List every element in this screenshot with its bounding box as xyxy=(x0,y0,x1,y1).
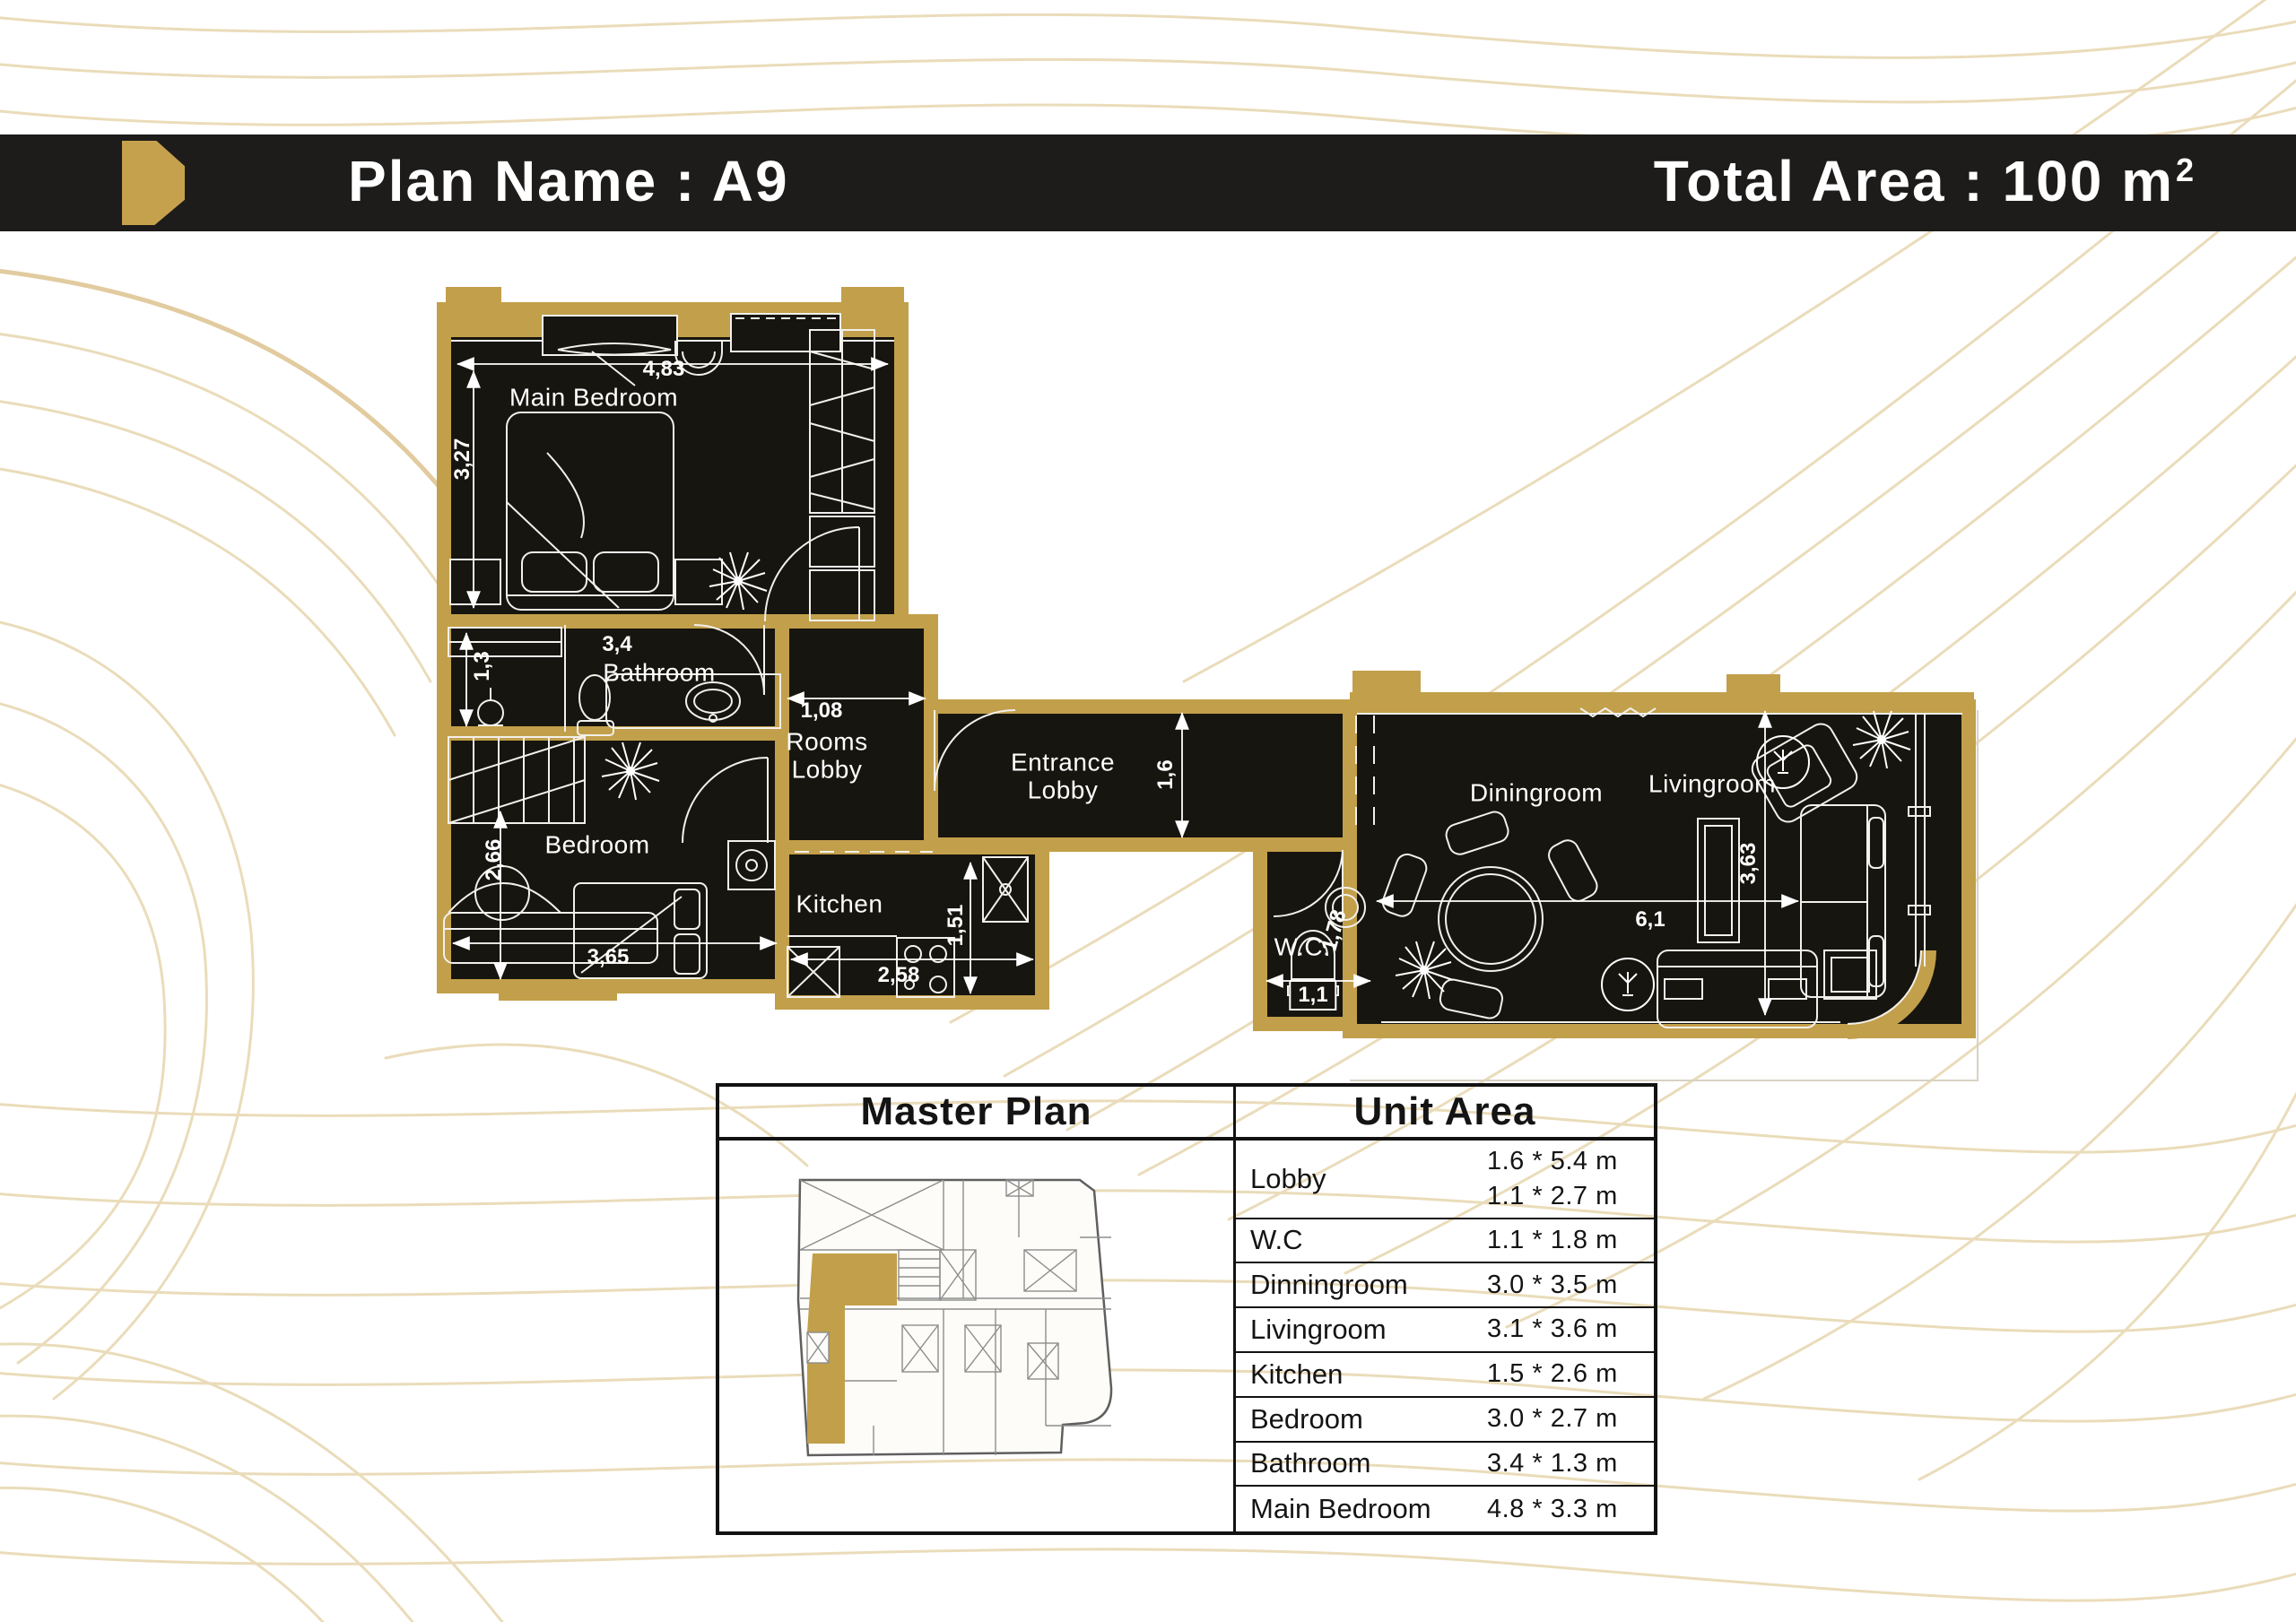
brand-logo xyxy=(122,141,185,225)
row-dimensions: 4.8 * 3.3 m xyxy=(1487,1492,1618,1527)
unit-area-table: Master Plan Unit Area xyxy=(716,1083,1657,1535)
dim-closet-width: 1,3 xyxy=(470,651,495,681)
table-row: Lobby 1.6 * 5.4 m 1.1 * 2.7 m xyxy=(1236,1141,1654,1219)
dim-living-width: 6,1 xyxy=(1635,907,1665,932)
dim-wc-width: 1,1 xyxy=(1289,980,1336,1010)
dim-bathroom-width: 3,4 xyxy=(602,632,631,657)
row-name: Bathroom xyxy=(1236,1447,1487,1479)
row-name: Main Bedroom xyxy=(1236,1493,1487,1525)
table-row: Livingroom 3.1 * 3.6 m xyxy=(1236,1308,1654,1353)
row-name: W.C xyxy=(1236,1224,1487,1256)
room-label-diningroom: Diningroom xyxy=(1470,778,1603,806)
row-name: Bedroom xyxy=(1236,1403,1487,1436)
table-row: Kitchen 1.5 * 2.6 m xyxy=(1236,1353,1654,1398)
row-dimension-line: 1.1 * 2.7 m xyxy=(1487,1179,1618,1214)
row-dimensions: 3.4 * 1.3 m xyxy=(1487,1446,1618,1481)
row-dimensions: 3.0 * 2.7 m xyxy=(1487,1401,1618,1436)
dim-bedroom-height: 2,66 xyxy=(482,839,507,881)
row-dimensions: 1.6 * 5.4 m 1.1 * 2.7 m xyxy=(1487,1144,1618,1214)
total-area-exponent: 2 xyxy=(2176,152,2196,188)
row-name: Dinningroom xyxy=(1236,1269,1487,1301)
row-dimensions: 1.1 * 1.8 m xyxy=(1487,1223,1618,1258)
room-label-entrance-lobby: Entrance Lobby xyxy=(985,749,1142,805)
master-plan-header: Master Plan xyxy=(719,1087,1236,1137)
room-label-rooms-lobby: Rooms Lobby xyxy=(769,728,885,785)
dim-main-bedroom-width: 4,83 xyxy=(643,357,685,382)
table-row: Dinningroom 3.0 * 3.5 m xyxy=(1236,1263,1654,1308)
room-label-kitchen: Kitchen xyxy=(796,889,883,917)
dim-bedroom-width: 3,65 xyxy=(587,945,630,970)
table-row: Main Bedroom 4.8 * 3.3 m xyxy=(1236,1487,1654,1531)
unit-notch-shaft xyxy=(807,1332,829,1363)
dim-entrance-height: 1,6 xyxy=(1153,759,1178,789)
table-row: W.C 1.1 * 1.8 m xyxy=(1236,1219,1654,1264)
table-body: Lobby 1.6 * 5.4 m 1.1 * 2.7 m W.C 1.1 * … xyxy=(719,1141,1654,1531)
row-dimensions: 3.1 * 3.6 m xyxy=(1487,1312,1618,1347)
master-plan-minimap-cell xyxy=(719,1141,1236,1531)
table-row: Bedroom 3.0 * 2.7 m xyxy=(1236,1398,1654,1443)
table-row: Bathroom 3.4 * 1.3 m xyxy=(1236,1443,1654,1488)
room-label-livingroom: Livingroom xyxy=(1648,769,1776,797)
row-name: Livingroom xyxy=(1236,1314,1487,1346)
row-dimensions: 3.0 * 3.5 m xyxy=(1487,1268,1618,1303)
total-area-value: Total Area : 100 m xyxy=(1654,149,2174,213)
unit-area-rows: Lobby 1.6 * 5.4 m 1.1 * 2.7 m W.C 1.1 * … xyxy=(1236,1141,1654,1531)
total-area-text: Total Area : 100 m2 xyxy=(1654,148,2196,214)
room-label-bathroom: Bathroom xyxy=(603,658,715,686)
unit-area-header: Unit Area xyxy=(1236,1087,1654,1137)
dim-main-bedroom-height: 3,27 xyxy=(450,438,475,481)
row-dimensions: 1.5 * 2.6 m xyxy=(1487,1357,1618,1392)
dim-kitchen-height: 1,51 xyxy=(944,905,969,947)
row-dimension-line: 1.6 * 5.4 m xyxy=(1487,1144,1618,1179)
row-name: Kitchen xyxy=(1236,1358,1487,1391)
dim-rooms-lobby-width: 1,08 xyxy=(801,698,843,724)
dim-kitchen-width: 2,58 xyxy=(878,963,920,988)
master-plan-minimap xyxy=(766,1157,1187,1515)
header-bar: Plan Name : A9 Total Area : 100 m2 xyxy=(0,134,2296,231)
dim-living-height: 3,63 xyxy=(1736,843,1761,885)
building-outline xyxy=(798,1180,1111,1455)
room-label-main-bedroom: Main Bedroom xyxy=(509,383,678,411)
room-label-bedroom: Bedroom xyxy=(544,830,649,858)
table-header-row: Master Plan Unit Area xyxy=(719,1087,1654,1141)
plan-name-title: Plan Name : A9 xyxy=(348,148,789,214)
row-name: Lobby xyxy=(1236,1163,1487,1195)
